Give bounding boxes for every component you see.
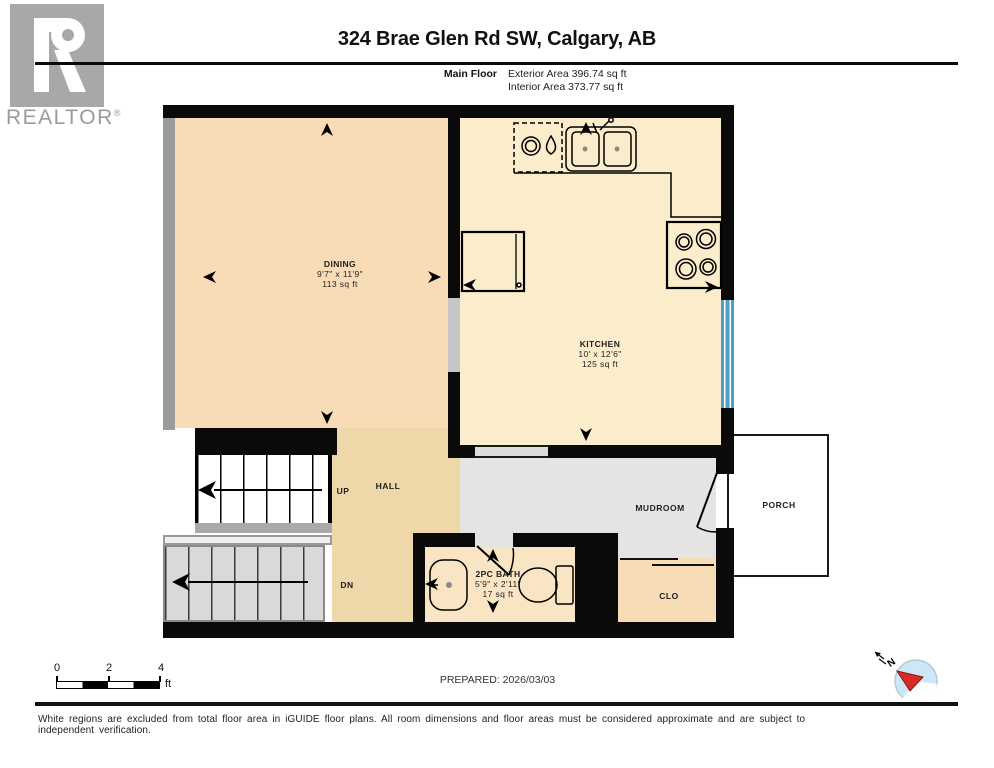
interior-area-text: Interior Area 373.77 sq ft bbox=[508, 81, 623, 93]
room-area: 17 sq ft bbox=[443, 589, 553, 599]
wall-segment-right-upper bbox=[721, 105, 734, 300]
stairs-down-landing bbox=[163, 535, 332, 545]
stairs-up-landing-edge bbox=[195, 523, 332, 533]
wall-segment-dining-kitchen bbox=[448, 118, 460, 458]
stairs-up bbox=[195, 455, 332, 523]
room-name: 2PC BATH bbox=[443, 569, 553, 579]
room-name: KITCHEN bbox=[545, 339, 655, 349]
wall-opening-dining-kitchen bbox=[448, 298, 460, 372]
closet-sliding-door-leaf bbox=[652, 564, 714, 566]
wall-segment-mudroom-door-bottom bbox=[716, 528, 734, 558]
room-label-hall: HALL bbox=[358, 481, 418, 491]
realtor-logo-icon bbox=[10, 4, 104, 107]
scale-tick-label-4: 4 bbox=[151, 662, 171, 674]
room-label-dining: DINING 9'7" x 11'9" 113 sq ft bbox=[285, 259, 395, 289]
wall-segment-top bbox=[163, 105, 734, 118]
kitchen-floor bbox=[460, 118, 721, 445]
prepared-date: PREPARED: 2026/03/03 bbox=[380, 674, 615, 686]
stairs-up-label: UP bbox=[330, 486, 356, 496]
stairs-down bbox=[163, 545, 325, 622]
wall-segment-bath-top-left bbox=[413, 533, 475, 547]
wall-segment-bath-top-right bbox=[513, 533, 618, 547]
footer-disclaimer: White regions are excluded from total fl… bbox=[38, 714, 838, 736]
room-name: DINING bbox=[285, 259, 395, 269]
room-label-bath: 2PC BATH 5'9" x 2'11" 17 sq ft bbox=[443, 569, 553, 599]
realtor-logo-text: REALTOR® bbox=[6, 106, 120, 130]
page-title: 324 Brae Glen Rd SW, Calgary, AB bbox=[0, 28, 994, 51]
floorplan-page: REALTOR® 324 Brae Glen Rd SW, Calgary, A… bbox=[0, 0, 994, 768]
registered-mark: ® bbox=[114, 108, 121, 118]
wall-segment-bottom bbox=[163, 622, 734, 638]
scale-bar bbox=[56, 681, 160, 689]
wall-segment-dining-bottom bbox=[195, 428, 337, 455]
floor-label: Main Floor bbox=[380, 68, 497, 80]
kitchen-window bbox=[721, 300, 734, 408]
room-dimensions: 10' x 12'6" bbox=[545, 349, 655, 359]
compass-north-label: N bbox=[886, 657, 898, 670]
room-dimensions: 9'7" x 11'9" bbox=[285, 269, 395, 279]
room-label-mudroom: MUDROOM bbox=[610, 503, 710, 513]
scale-unit-label: ft bbox=[165, 678, 171, 690]
header-divider bbox=[35, 62, 958, 65]
compass-icon: N bbox=[875, 652, 937, 704]
room-area: 125 sq ft bbox=[545, 359, 655, 369]
room-dimensions: 5'9" x 2'11" bbox=[443, 579, 553, 589]
footer-divider bbox=[35, 702, 958, 706]
closet-floor bbox=[618, 558, 716, 622]
room-label-kitchen: KITCHEN 10' x 12'6" 125 sq ft bbox=[545, 339, 655, 369]
room-label-porch: PORCH bbox=[739, 500, 819, 510]
closet-sliding-door-leaf bbox=[620, 558, 678, 560]
exterior-area-text: Exterior Area 396.74 sq ft bbox=[508, 68, 626, 80]
scale-tick-label-2: 2 bbox=[99, 662, 119, 674]
realtor-wordmark: REALTOR bbox=[6, 106, 114, 129]
stairs-down-label: DN bbox=[334, 580, 360, 590]
doorway-kitchen-mudroom bbox=[475, 445, 548, 458]
room-label-closet: CLO bbox=[640, 591, 698, 601]
room-area: 113 sq ft bbox=[285, 279, 395, 289]
wall-segment-left-shared bbox=[163, 118, 175, 430]
scale-tick-label-0: 0 bbox=[47, 662, 67, 674]
wall-segment-mudroom-door-top bbox=[716, 458, 734, 474]
